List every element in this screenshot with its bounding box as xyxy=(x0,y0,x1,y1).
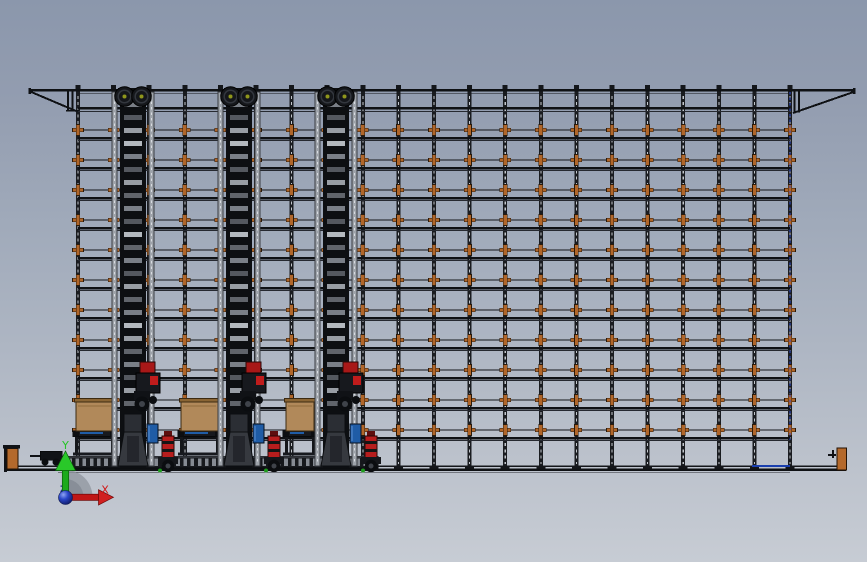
cad-scene[interactable]: Z Y X xyxy=(0,0,867,562)
y-axis-label: Y xyxy=(61,439,69,452)
transfer-trolley[interactable] xyxy=(30,451,62,466)
origin-sphere xyxy=(59,491,73,505)
cad-viewport[interactable]: Z Y X xyxy=(0,0,867,562)
pallet-station[interactable] xyxy=(283,399,317,456)
x-axis-label: X xyxy=(101,484,109,497)
